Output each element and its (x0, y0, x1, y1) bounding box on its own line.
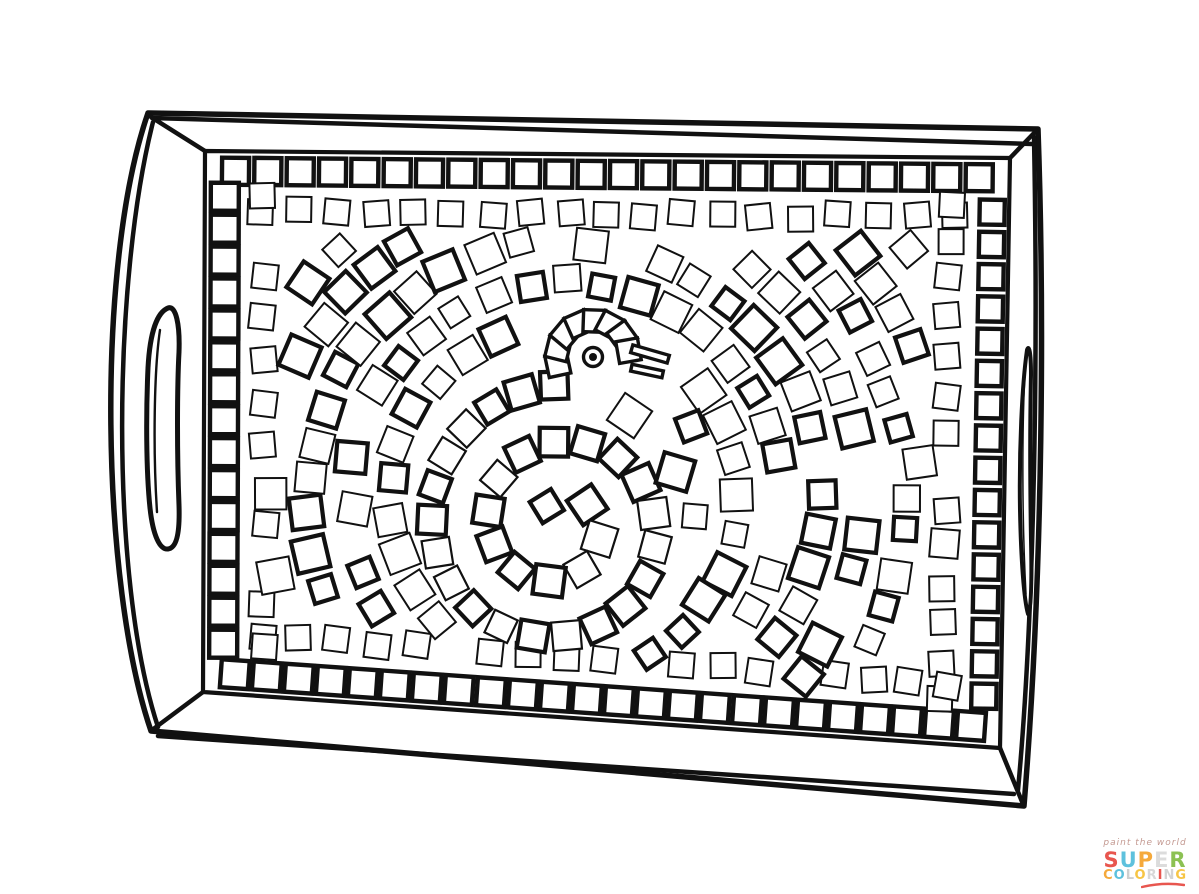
mosaic-tile (517, 272, 547, 302)
mosaic-tile (939, 192, 965, 218)
mosaic-tile (710, 653, 735, 678)
mosaic-tile (416, 159, 443, 186)
logo-letter: N (1163, 868, 1175, 883)
mosaic-tile (966, 164, 993, 191)
mosaic-tile (476, 639, 503, 666)
mosaic-tile (642, 161, 669, 188)
mosaic-tile (553, 264, 581, 292)
mosaic-tile (363, 200, 390, 227)
mosaic-tile (335, 441, 368, 474)
mosaic-tile (934, 497, 961, 524)
mosaic-tile (508, 679, 538, 709)
mosaic-tile (209, 598, 237, 626)
mosaic-tile (794, 412, 825, 443)
mosaic-tile (412, 673, 442, 703)
mosaic-tile (971, 683, 996, 708)
mosaic-tile (804, 163, 831, 190)
mosaic-tile (294, 462, 326, 494)
mosaic-tile (977, 329, 1002, 354)
mosaic-tile (289, 495, 324, 530)
mosaic-tile (209, 534, 237, 562)
mosaic-tile (351, 159, 378, 186)
mosaic-tile (211, 215, 239, 243)
mosaic-tile (620, 277, 659, 316)
mosaic-tile (974, 490, 999, 515)
mosaic-tile (796, 700, 826, 730)
left-handle-hole (147, 308, 179, 549)
mosaic-tile (210, 502, 238, 530)
logo-letter: L (1126, 868, 1135, 883)
logo-letter: G (1175, 868, 1187, 883)
mosaic-tile (893, 517, 917, 541)
mosaic-tile (551, 620, 582, 651)
mosaic-tile (419, 470, 452, 503)
mosaic-tile (976, 425, 1001, 450)
mosaic-tile (448, 160, 475, 187)
mosaic-tile (472, 495, 504, 527)
mosaic-tile (772, 162, 799, 189)
mosaic-tile (979, 199, 1004, 224)
mosaic-tile (956, 711, 986, 741)
mosaic-tile (532, 564, 565, 597)
mosaic-tile (972, 619, 997, 644)
mosaic-tile (308, 574, 338, 604)
mosaic-tile (675, 410, 707, 442)
mosaic-tile (828, 702, 858, 732)
mosaic-tile (513, 160, 540, 187)
mosaic-tile (209, 566, 237, 594)
mosaic-tile (656, 452, 696, 492)
mosaic-tile (933, 672, 962, 701)
mosaic-tile (732, 695, 762, 725)
mosaic-tile (588, 274, 615, 301)
mosaic-tile (286, 197, 311, 222)
mosaic-tile (210, 342, 238, 370)
mosaic-tile (209, 630, 237, 658)
mosaic-tile (707, 162, 734, 189)
mosaic-tile (877, 558, 912, 593)
mosaic-tile (210, 470, 238, 498)
mosaic-tile (721, 521, 748, 548)
mosaic-tile (590, 646, 618, 674)
mosaic-tile (975, 458, 1000, 483)
mosaic-tile (933, 421, 958, 446)
mosaic-tile (348, 668, 378, 698)
mosaic-tile (373, 503, 407, 537)
mosaic-tile (973, 554, 998, 579)
mosaic-tile (211, 247, 239, 275)
logo-letter: O (1135, 868, 1147, 883)
mosaic-tile (837, 554, 867, 584)
mosaic-tile (250, 346, 277, 373)
mosaic-tile (578, 161, 605, 188)
mosaic-tile (668, 199, 695, 226)
mosaic-tile (934, 263, 962, 291)
mosaic-tile (869, 163, 896, 190)
mosaic-tile (895, 329, 929, 363)
mosaic-tile (974, 522, 999, 547)
mosaic-tile (540, 428, 569, 457)
mosaic-tile (504, 374, 540, 410)
mosaic-tile (220, 659, 250, 689)
mosaic-tile (291, 534, 331, 574)
mosaic-tile (668, 691, 698, 721)
supercoloring-logo: paint the world SUPER COLORING (1103, 839, 1187, 889)
mosaic-tile (403, 630, 431, 658)
mosaic-tile (323, 198, 350, 225)
mosaic-tile (438, 201, 464, 227)
logo-swash-stroke (1142, 884, 1184, 887)
mosaic-tile (861, 667, 887, 693)
mosaic-tile (210, 438, 238, 466)
mosaic-tile (933, 164, 960, 191)
mosaic-tile (745, 658, 773, 686)
mosaic-tile (894, 667, 923, 696)
mosaic-tile (337, 491, 372, 526)
mosaic-tile (417, 505, 447, 535)
mosaic-tile (308, 392, 345, 429)
mosaic-tile (930, 609, 956, 635)
mosaic-tile (976, 393, 1001, 418)
mosaic-tile (400, 199, 426, 225)
mosaic-tile (860, 704, 890, 734)
mosaic-tile (284, 664, 314, 694)
mosaic-tile (316, 666, 346, 696)
mosaic-tile (929, 528, 960, 559)
mosaic-tile (869, 592, 899, 622)
mosaic-tile (444, 675, 474, 705)
mosaic-tile (866, 203, 892, 229)
mosaic-tile (379, 463, 408, 492)
mosaic-tray-drawing (0, 0, 1199, 894)
mosaic-tile (933, 383, 961, 411)
mosaic-tile (481, 160, 508, 187)
mosaic-tile (248, 303, 276, 331)
mosaic-tile (480, 202, 507, 229)
mosaic-tile (978, 264, 1003, 289)
mosaic-tile (630, 203, 657, 230)
mosaic-tile (939, 229, 964, 254)
mosaic-tile (924, 709, 954, 739)
mosaic-tile (540, 682, 570, 712)
mosaic-tile (517, 620, 550, 653)
mosaic-tile (844, 518, 879, 553)
mosaic-tile (604, 686, 634, 716)
mosaic-tile (739, 162, 766, 189)
mosaic-tile (901, 164, 928, 191)
mosaic-tile (517, 199, 544, 226)
mosaic-tile (788, 206, 813, 231)
mosaic-tile (252, 661, 282, 691)
mosaic-tile (545, 160, 572, 187)
mosaic-tile (476, 677, 506, 707)
mosaic-tile (251, 633, 278, 660)
mosaic-tile (210, 278, 238, 306)
mosaic-tile (668, 652, 695, 679)
mosaic-tile (299, 428, 335, 464)
mosaic-tile (422, 537, 454, 569)
logo-letter: C (1103, 868, 1114, 883)
mosaic-tile (210, 374, 238, 402)
mosaic-tile (558, 199, 585, 226)
mosaic-tile (929, 576, 954, 601)
mosaic-tile (892, 706, 922, 736)
mosaic-tile (573, 228, 609, 264)
mosaic-tile (972, 651, 997, 676)
mosaic-tile (933, 343, 960, 370)
mosaic-tile (384, 159, 411, 186)
mosaic-tile (720, 478, 753, 511)
mosaic-tile (933, 302, 960, 329)
mosaic-tile (835, 409, 874, 448)
mosaic-tile (287, 158, 314, 185)
mosaic-tile (254, 158, 281, 185)
mosaic-tile (884, 414, 912, 442)
bird-eye-pupil (589, 353, 597, 361)
mosaic-tile (249, 432, 276, 459)
mosaic-tile (675, 162, 702, 189)
mosaic-tile (610, 161, 637, 188)
mosaic-tile (211, 183, 239, 211)
mosaic-tile (808, 480, 836, 508)
logo-letter: O (1114, 868, 1126, 883)
mosaic-tile (285, 625, 311, 651)
mosaic-tile (636, 688, 666, 718)
mosaic-tile (801, 514, 836, 549)
mosaic-tile (363, 632, 391, 660)
mosaic-tile (745, 203, 772, 230)
mosaic-tile (977, 361, 1002, 386)
mosaic-tile (710, 201, 735, 226)
right-handle-cutout (1020, 348, 1032, 614)
mosaic-tile (904, 202, 931, 229)
mosaic-tile (252, 511, 279, 538)
mosaic-tile (251, 263, 279, 291)
mosaic-tile (764, 697, 794, 727)
mosaic-tile (978, 296, 1003, 321)
mosaic-tile (255, 478, 286, 509)
mosaic-tile (836, 163, 863, 190)
mosaic-tile (572, 684, 602, 714)
mosaic-tile (788, 547, 829, 588)
mosaic-tile (700, 693, 730, 723)
left-handle-cutout (147, 308, 179, 549)
mosaic-tile (902, 445, 937, 480)
mosaic-tile (504, 227, 534, 257)
mosaic-tile (762, 439, 795, 472)
mosaic-tile (256, 556, 294, 594)
mosaic-tile (249, 183, 275, 209)
mosaic-tile (894, 485, 920, 511)
mosaic-tile (322, 625, 350, 653)
mosaic-tile (250, 390, 278, 418)
mosaic-tile (637, 497, 670, 530)
mosaic-tile (979, 232, 1004, 257)
mosaic-tile (210, 310, 238, 338)
mosaic-tile (593, 202, 619, 228)
mosaic-tile (380, 670, 410, 700)
mosaic-tile (319, 158, 346, 185)
mosaic-tile (638, 530, 672, 564)
mosaic-tile (682, 503, 708, 529)
mosaic-tile (210, 406, 238, 434)
coloring-page: paint the world SUPER COLORING (0, 0, 1199, 894)
logo-letter: R (1147, 868, 1158, 883)
logo-word-coloring: COLORING (1103, 869, 1187, 883)
mosaic-tile (973, 587, 998, 612)
mosaic-tile (824, 200, 851, 227)
